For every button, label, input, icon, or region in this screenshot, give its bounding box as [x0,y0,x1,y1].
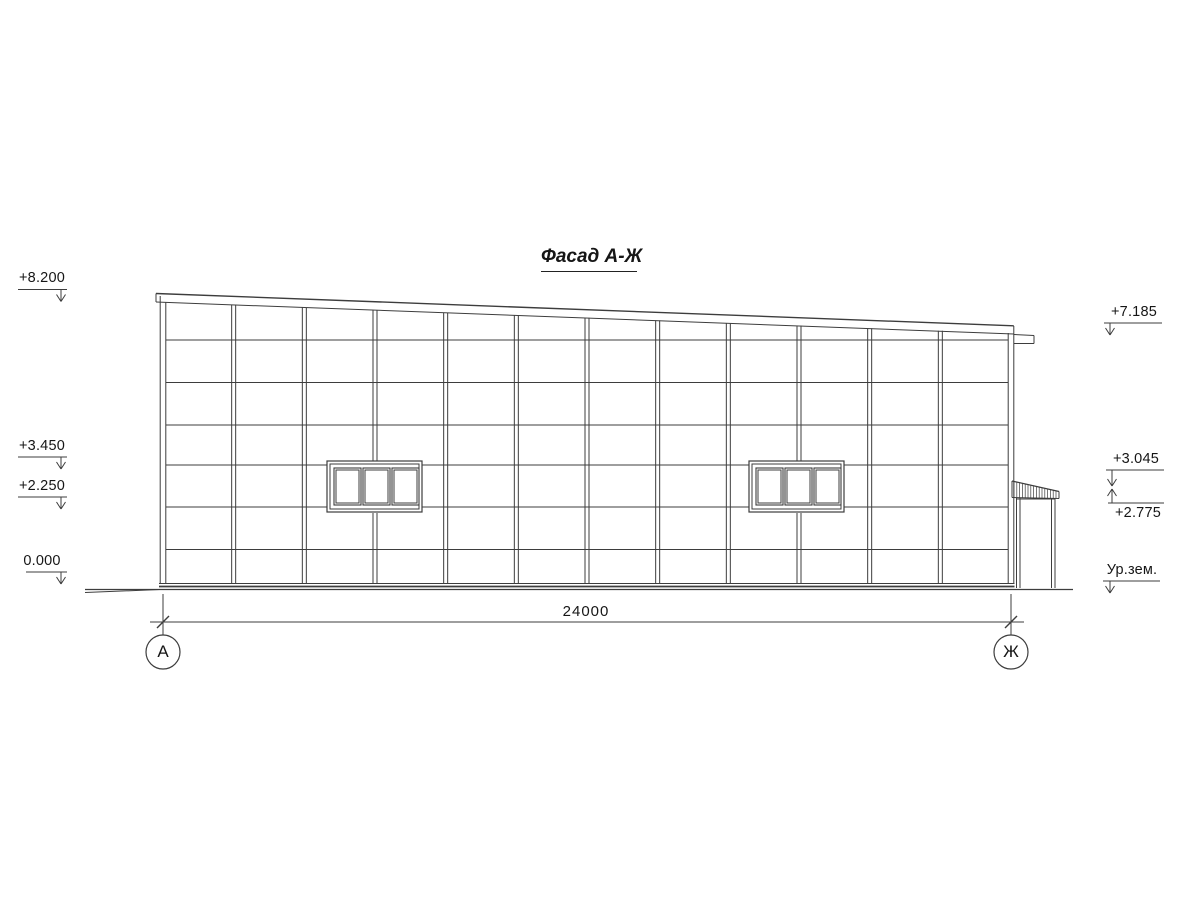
elevation-mark-arrows [18,290,1164,594]
window-right [749,461,844,512]
plinth-and-ground-line [85,584,1073,593]
axis-bubble-a: А [146,635,180,669]
elevation-label-right-2: +2.775 [1110,505,1166,521]
elevation-label-left-1: +3.450 [14,438,70,454]
facade-drawing-sheet: Фасад А-Ж +8.200 +3.450 +2.250 0.000 +7.… [0,0,1200,900]
parapet-roof-edge [156,294,1034,344]
window-left [327,461,422,512]
end-walls [160,296,1014,584]
panel-horizontal-joints [166,340,1008,550]
elevation-label-right-3: Ур.зем. [1104,562,1160,578]
elevation-label-left-2: +2.250 [14,478,70,494]
elevation-label-right-0: +7.185 [1106,304,1162,320]
dimension-label: 24000 [540,603,632,620]
facade-linework [0,0,1200,900]
axis-bubble-zh: Ж [994,635,1028,669]
drawing-title: Фасад А-Ж [541,246,637,272]
elevation-label-left-3: 0.000 [14,553,70,569]
elevation-label-left-0: +8.200 [14,270,70,286]
entrance-canopy-hatched [1012,481,1059,499]
entrance-annex [1017,498,1056,589]
elevation-label-right-1: +3.045 [1108,451,1164,467]
axis-bubble-circles [146,635,1028,669]
panel-vertical-joints [232,305,943,584]
